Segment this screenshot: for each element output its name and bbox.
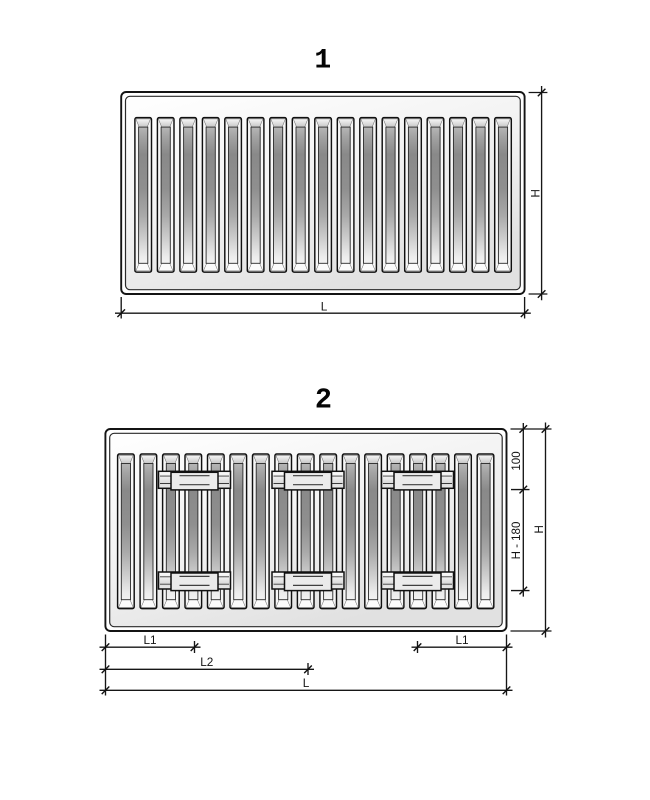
svg-text:2: 2 [315,384,332,417]
svg-text:H - 180: H - 180 [511,522,523,560]
svg-text:1: 1 [314,46,331,77]
svg-text:H: H [532,525,546,534]
svg-text:L2: L2 [200,655,213,669]
svg-text:H: H [528,189,542,198]
svg-text:L: L [303,676,310,690]
svg-text:L1: L1 [455,633,468,647]
svg-text:100: 100 [511,451,523,470]
svg-text:L: L [321,299,328,313]
svg-text:L1: L1 [143,633,156,647]
